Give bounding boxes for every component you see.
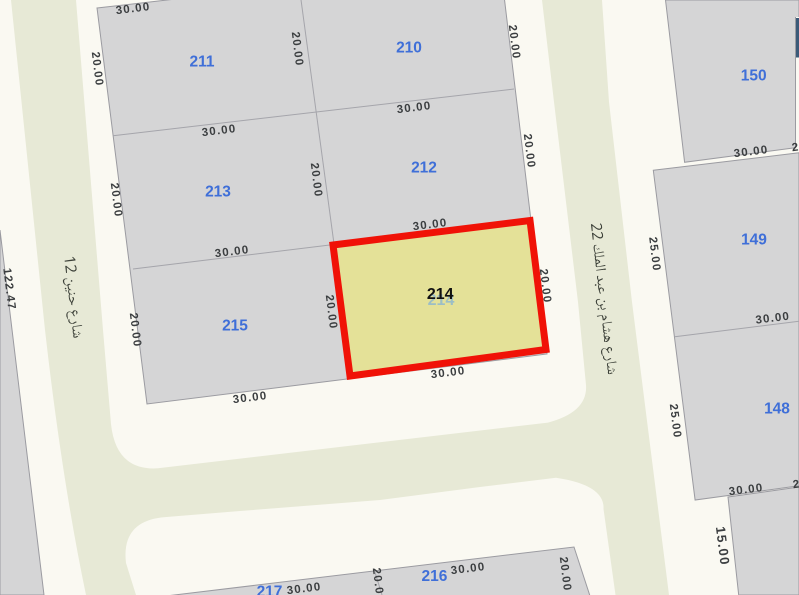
svg-text:150: 150 xyxy=(741,68,767,85)
svg-text:215: 215 xyxy=(222,318,248,335)
svg-text:149: 149 xyxy=(741,232,767,249)
svg-text:212: 212 xyxy=(411,160,437,177)
svg-text:214: 214 xyxy=(427,286,454,303)
svg-text:213: 213 xyxy=(205,184,231,201)
svg-text:217: 217 xyxy=(257,584,283,595)
svg-text:210: 210 xyxy=(396,40,422,57)
svg-text:216: 216 xyxy=(421,568,447,585)
svg-text:211: 211 xyxy=(189,54,214,71)
svg-text:148: 148 xyxy=(764,401,790,418)
